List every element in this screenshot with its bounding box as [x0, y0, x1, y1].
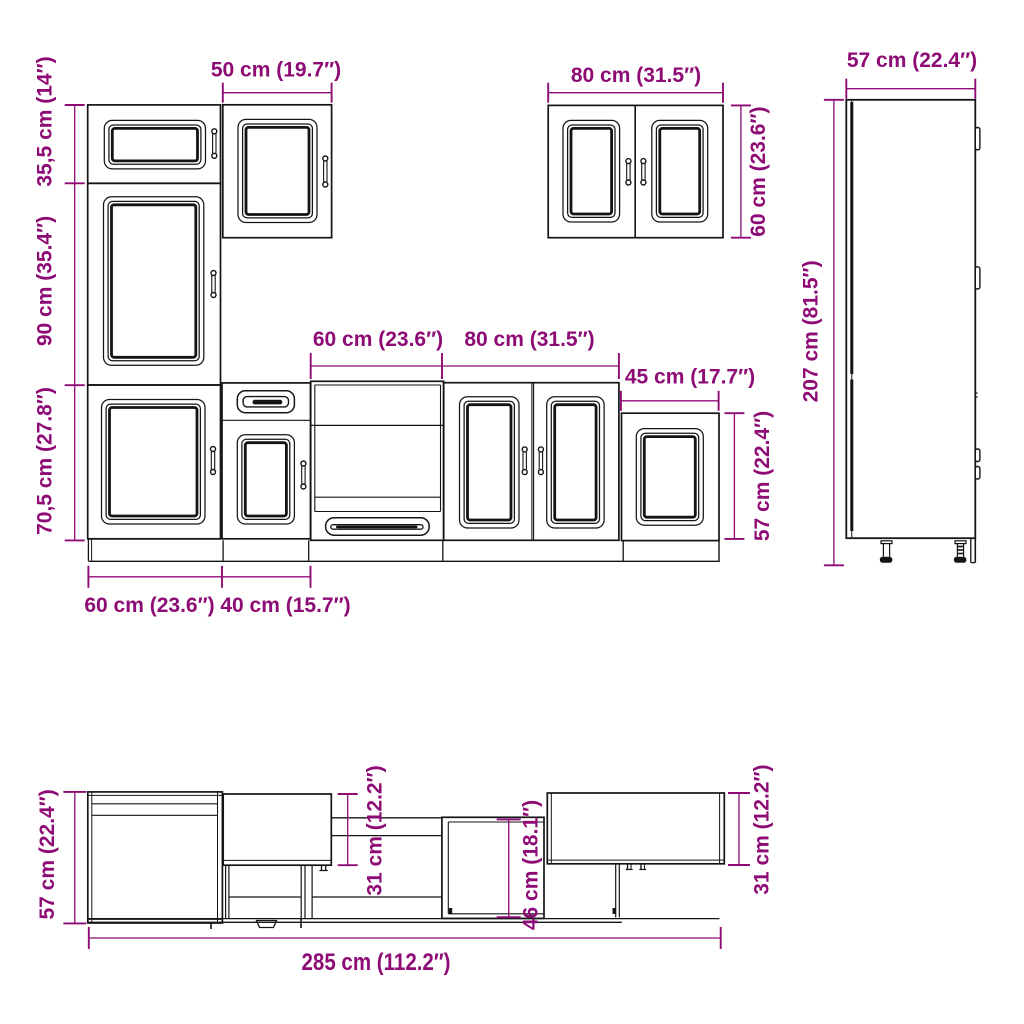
svg-text:57 cm (22.4″): 57 cm (22.4″) [847, 49, 977, 72]
svg-text:90 cm (35.4″): 90 cm (35.4″) [34, 216, 57, 346]
svg-text:40 cm (15.7″): 40 cm (15.7″) [220, 594, 350, 617]
svg-text:60 cm (23.6″): 60 cm (23.6″) [747, 106, 770, 236]
svg-text:70,5 cm (27.8″): 70,5 cm (27.8″) [34, 387, 57, 535]
svg-text:80 cm (31.5″): 80 cm (31.5″) [464, 328, 594, 351]
svg-text:45 cm (17.7″): 45 cm (17.7″) [625, 366, 755, 389]
svg-text:46 cm (18.1″): 46 cm (18.1″) [519, 800, 542, 930]
svg-text:60 cm (23.6″): 60 cm (23.6″) [313, 328, 443, 351]
svg-text:285 cm (112.2″): 285 cm (112.2″) [302, 949, 451, 976]
svg-text:80 cm (31.5″): 80 cm (31.5″) [571, 64, 701, 87]
svg-text:57 cm (22.4″): 57 cm (22.4″) [751, 411, 774, 541]
svg-text:35,5 cm (14″): 35,5 cm (14″) [34, 56, 57, 186]
svg-text:31 cm (12.2″): 31 cm (12.2″) [751, 764, 774, 894]
svg-text:57 cm (22.4″): 57 cm (22.4″) [36, 789, 59, 919]
svg-text:60 cm (23.6″): 60 cm (23.6″) [84, 594, 214, 617]
svg-text:207 cm (81.5″): 207 cm (81.5″) [800, 260, 823, 402]
svg-text:50 cm (19.7″): 50 cm (19.7″) [211, 59, 341, 82]
svg-text:31 cm (12.2″): 31 cm (12.2″) [364, 765, 387, 895]
